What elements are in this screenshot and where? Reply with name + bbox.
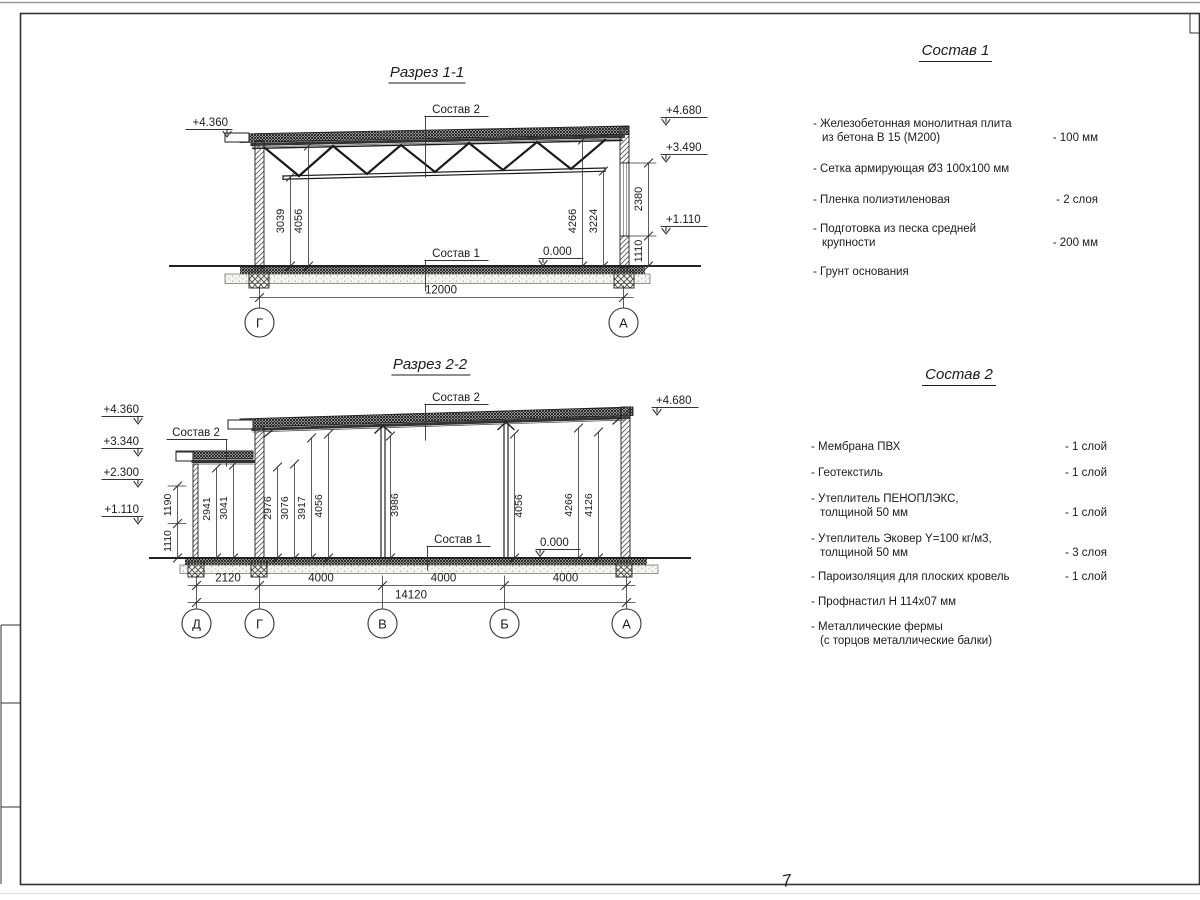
elevation-label: +4.680	[656, 395, 692, 407]
list-item: - Геотекстиль - 1 слой	[811, 466, 1107, 480]
axis-label: А	[619, 316, 628, 331]
item-line: - Подготовка из песка средней	[813, 222, 1036, 236]
item-line: - Железобетонная монолитная плита	[813, 117, 1036, 131]
left-dimension-chain: 1190 1110	[162, 482, 186, 562]
list-title: Состав 2	[811, 368, 1107, 387]
dim-label: 4056	[293, 209, 305, 233]
wall-right	[620, 128, 629, 268]
item-line: - Утеплитель Эковер Y=100 кг/м3,	[811, 532, 1045, 546]
dim-label: 1110	[162, 530, 174, 552]
elevation-label: +4.360	[193, 117, 229, 129]
axis-label: В	[378, 617, 387, 632]
axis-label: Г	[256, 316, 263, 331]
dim-label: 4266	[567, 209, 579, 233]
dim-label: 2941	[201, 497, 213, 521]
list-title: Состав 1	[813, 44, 1098, 63]
axis-label: Д	[192, 617, 201, 632]
section-2-2-drawing: Разрез 2-2	[102, 356, 698, 638]
list-item: - Грунт основания	[813, 265, 1098, 279]
dim-label: 2380	[633, 187, 645, 211]
dim-label: 1190	[162, 494, 174, 517]
dim-label: 4000	[308, 573, 334, 585]
item-line: крупности	[822, 236, 1036, 250]
zero-level-label: 0.000	[540, 537, 569, 549]
section-title: Разрез 1-1	[390, 64, 464, 81]
item-value: - 2 слоя	[1056, 193, 1098, 207]
list-item: - Мембрана ПВХ - 1 слой	[811, 440, 1107, 454]
wall-left	[255, 141, 264, 268]
dim-label: 3224	[588, 209, 600, 233]
item-value: - 200 мм	[1053, 236, 1098, 250]
sheet-number: 7	[780, 870, 793, 890]
item-value: - 1 слой	[1065, 570, 1107, 584]
list-item: - Металлические фермы (с торцов металлич…	[811, 620, 1107, 648]
item-value: - 1 слой	[1065, 440, 1107, 454]
elevation-label: +1.110	[104, 504, 139, 516]
dim-label: 1110	[633, 240, 645, 263]
drawing-sheet: 7 Разрез 1-1	[0, 0, 1200, 900]
list-item: - Утеплитель ПЕНОПЛЭКС, толщиной 50 мм -…	[811, 492, 1107, 520]
item-line: - Геотекстиль	[811, 466, 1045, 480]
list-item: - Сетка армирующая Ø3 100x100 мм	[813, 162, 1098, 176]
item-line: - Пароизоляция для плоских кровель	[811, 570, 1045, 584]
item-line: - Профнастил Н 114x07 мм	[811, 595, 1045, 609]
item-value: - 100 мм	[1053, 131, 1098, 145]
dim-label: 4056	[313, 494, 325, 518]
elevation-label: +2.300	[104, 467, 140, 479]
layer-ref-label: Состав 2	[432, 104, 480, 116]
elevation-label: +4.680	[666, 105, 702, 117]
roof-slab	[225, 126, 629, 147]
list-item: - Профнастил Н 114x07 мм	[811, 595, 1107, 609]
zero-level-label: 0.000	[543, 246, 572, 258]
axis-label: Б	[500, 617, 509, 632]
dim-label: 14120	[395, 590, 427, 602]
item-line: - Грунт основания	[813, 265, 1036, 279]
axis-label: Г	[256, 617, 263, 632]
dim-label: 3076	[279, 496, 291, 520]
bottom-dimension: 12000 Г А	[245, 285, 638, 338]
item-line: - Пленка полиэтиленовая	[813, 193, 1036, 207]
main-roof	[228, 407, 633, 432]
elevation-label: +1.110	[666, 214, 701, 226]
item-value: - 3 слоя	[1065, 546, 1107, 560]
elevation-label: +4.360	[104, 404, 140, 416]
dim-label: 3039	[275, 209, 287, 233]
section-1-1-drawing: Разрез 1-1	[170, 64, 707, 337]
layer-ref-label: Состав 2	[432, 392, 480, 404]
list-item: - Пленка полиэтиленовая - 2 слоя	[813, 193, 1098, 207]
item-line: - Мембрана ПВХ	[811, 440, 1045, 454]
walls-and-columns	[193, 407, 630, 558]
item-line: (с торцов металлические балки)	[820, 634, 1045, 648]
dim-label: 12000	[425, 285, 457, 297]
list-item: - Подготовка из песка средней крупности …	[813, 222, 1098, 250]
bottom-dimension: 2120 4000 4000 4000 14120 Д Г В Б А	[182, 573, 641, 639]
item-value: - 1 слой	[1065, 466, 1107, 480]
item-value: - 1 слой	[1065, 506, 1107, 520]
dim-label: 4000	[431, 573, 457, 585]
list-item: - Железобетонная монолитная плита из бет…	[813, 117, 1098, 145]
elevation-label: +3.490	[666, 142, 702, 154]
dim-label: 4000	[553, 573, 579, 585]
axis-label: А	[622, 617, 631, 632]
dim-label: 3041	[218, 496, 230, 520]
list-item: - Утеплитель Эковер Y=100 кг/м3, толщино…	[811, 532, 1107, 560]
item-line: из бетона В 15 (М200)	[822, 131, 1036, 145]
dim-label: 2120	[215, 573, 241, 585]
elevation-label: +3.340	[104, 436, 140, 448]
item-line: - Металлические фермы	[811, 620, 1045, 634]
dim-label: 4056	[513, 494, 525, 518]
dim-label: 4126	[583, 493, 595, 517]
item-line: - Утеплитель ПЕНОПЛЭКС,	[811, 492, 1045, 506]
item-line: толщиной 50 мм	[820, 546, 1045, 560]
item-line: - Сетка армирующая Ø3 100x100 мм	[813, 162, 1036, 176]
section-title: Разрез 2-2	[393, 356, 468, 373]
dim-label: 3917	[296, 496, 308, 520]
list-item: - Пароизоляция для плоских кровель - 1 с…	[811, 570, 1107, 584]
sostav2-list: Состав 2 - Мембрана ПВХ - 1 слой - Геоте…	[811, 368, 1107, 648]
dim-label: 4266	[563, 493, 575, 517]
layer-ref-label: Состав 2	[172, 427, 220, 439]
dim-label: 2976	[262, 496, 274, 520]
layer-ref-label: Состав 1	[434, 534, 482, 546]
item-line: толщиной 50 мм	[820, 506, 1045, 520]
annex-roof	[176, 451, 253, 464]
dim-label: 3986	[389, 493, 401, 517]
sostav1-list: Состав 1 - Железобетонная монолитная пли…	[813, 44, 1098, 279]
right-dimension-chain: 2380 1110	[629, 159, 656, 270]
layer-ref-label: Состав 1	[432, 248, 480, 260]
